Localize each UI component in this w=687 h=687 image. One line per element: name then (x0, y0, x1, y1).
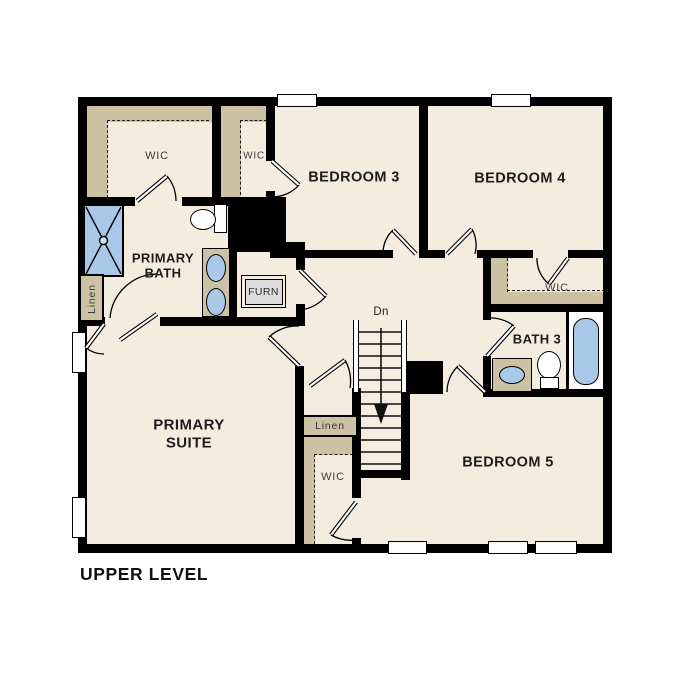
bedroom4-label: BEDROOM 4 (474, 170, 565, 187)
attic-dashed-line (240, 120, 267, 121)
chase-block (405, 361, 443, 394)
wall-segment (78, 97, 612, 106)
wall-segment (477, 250, 533, 258)
wall-segment (296, 242, 305, 270)
wall-segment (160, 317, 305, 326)
window (491, 94, 531, 107)
attic-dashed-line (314, 454, 353, 455)
wall-segment (229, 248, 237, 326)
attic-dashed-line (507, 258, 508, 292)
window (535, 541, 577, 554)
bed3-wic-attic-band (221, 106, 241, 200)
bathtub (573, 318, 599, 385)
wall-segment (78, 544, 612, 553)
attic-dashed-line (107, 120, 108, 198)
wall-segment (568, 250, 612, 258)
page-title: UPPER LEVEL (80, 564, 208, 585)
wall-segment (295, 366, 304, 545)
window (72, 497, 86, 538)
attic-dashed-line (314, 454, 315, 544)
primary-suite-label: PRIMARY SUITE (139, 416, 239, 451)
attic-dashed-line (240, 120, 241, 200)
window (488, 541, 528, 554)
sink (206, 254, 226, 282)
furnace-label: FURN (248, 286, 279, 298)
bedroom5-label: BEDROOM 5 (462, 454, 553, 471)
primary-wic-attic-band (87, 106, 108, 198)
toilet-bowl (537, 351, 561, 379)
stair-rail (401, 320, 407, 392)
wall-segment (212, 97, 221, 206)
wall-segment (401, 388, 410, 480)
linen-primary-label: Linen (86, 284, 98, 314)
wall-segment (483, 304, 612, 312)
window (388, 541, 427, 554)
wall-segment (266, 97, 275, 161)
toilet-bowl (190, 209, 216, 230)
wall-segment (603, 97, 612, 553)
attic-dashed-line (107, 120, 209, 121)
sink (499, 366, 525, 384)
toilet-tank (540, 377, 559, 389)
shower (83, 204, 124, 277)
sink (206, 288, 226, 316)
wall-segment (352, 388, 361, 498)
hall-wic-label: WIC (321, 471, 345, 483)
wall-segment (352, 470, 410, 478)
bed3-wic-label: WIC (243, 151, 265, 162)
bedroom3-label: BEDROOM 3 (308, 169, 399, 186)
wall-segment (270, 250, 393, 258)
wall-segment (419, 97, 428, 258)
primary-bath-label: PRIMARY BATH (124, 251, 202, 282)
floor-plan-upper-level: WIC WIC BEDROOM 3 BEDROOM 4 PRIMARY BATH… (0, 0, 687, 687)
linen-hall-label: Linen (315, 420, 345, 432)
stair-rail (353, 320, 359, 392)
wall-segment (419, 250, 445, 258)
stairs-down-label: Dn (373, 306, 388, 318)
primary-wic-label: WIC (145, 150, 169, 162)
window (72, 332, 86, 373)
wall-segment (352, 538, 361, 550)
window (277, 94, 317, 107)
bath3-label: BATH 3 (512, 331, 562, 346)
bed4-wic-label: WIC (545, 282, 569, 294)
